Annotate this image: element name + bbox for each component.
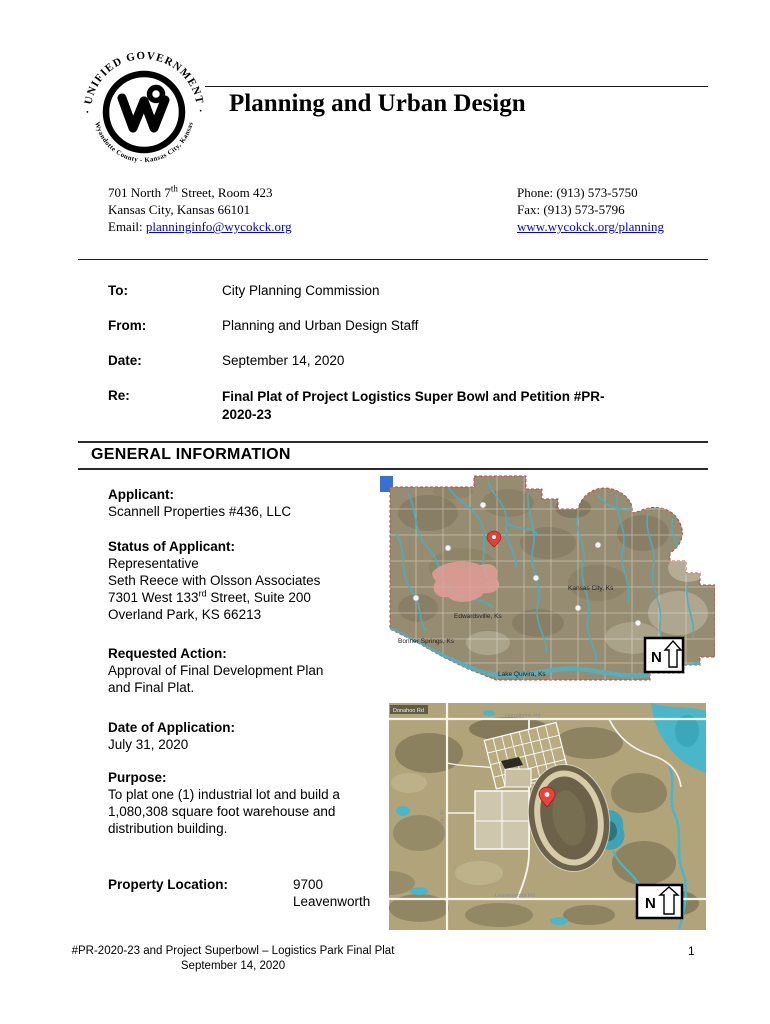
county-terrain: Edwardsville, Ks Bonner Springs, Ks Kans… xyxy=(388,473,715,683)
contact-block: Phone: (913) 573-5750 Fax: (913) 573-579… xyxy=(517,184,664,236)
field-requested-action-label: Requested Action: xyxy=(108,645,323,662)
address-line-2: Kansas City, Kansas 66101 xyxy=(108,201,292,218)
label-lake-quivira: Lake Quivira, Ks xyxy=(498,671,546,678)
north-arrow: N xyxy=(645,638,683,672)
field-date-of-application-label: Date of Application: xyxy=(108,719,235,736)
field-date-of-application: Date of Application: July 31, 2020 xyxy=(108,719,235,753)
memo-re-label: Re: xyxy=(108,388,130,403)
field-applicant-label: Applicant: xyxy=(108,486,291,503)
label-bottom-road: Leavenworth Rd xyxy=(495,893,535,899)
footer-line-1: #PR-2020-23 and Project Superbowl – Logi… xyxy=(63,944,403,959)
website-line: www.wycokck.org/planning xyxy=(517,218,664,235)
memo-re-value: Final Plat of Project Logistics Super Bo… xyxy=(222,388,642,423)
county-location-map: Edwardsville, Ks Bonner Springs, Ks Kans… xyxy=(388,473,715,683)
address-line-1: 701 North 7th Street, Room 423 xyxy=(108,184,292,201)
header-rule xyxy=(205,86,708,87)
memo-to-label: To: xyxy=(108,283,128,298)
memo-from-label: From: xyxy=(108,318,146,333)
svg-text:N: N xyxy=(651,649,662,666)
field-purpose-label: Purpose: xyxy=(108,769,390,786)
field-applicant: Applicant: Scannell Properties #436, LLC xyxy=(108,486,291,520)
label-left-road: N 99th St xyxy=(440,810,446,833)
page-title: Planning and Urban Design xyxy=(229,90,526,118)
field-purpose: Purpose: To plat one (1) industrial lot … xyxy=(108,769,390,837)
field-status-line4: Overland Park, KS 66213 xyxy=(108,606,320,623)
field-purpose-value: To plat one (1) industrial lot and build… xyxy=(108,786,390,837)
memo-from-value: Planning and Urban Design Staff xyxy=(222,318,642,333)
field-status-label: Status of Applicant: xyxy=(108,538,320,555)
field-applicant-value: Scannell Properties #436, LLC xyxy=(108,503,291,520)
field-property-location-value: 9700 Leavenworth xyxy=(293,876,370,910)
phone-line: Phone: (913) 573-5750 xyxy=(517,184,664,201)
section-heading-general-information: GENERAL INFORMATION xyxy=(78,441,708,470)
field-requested-action: Requested Action: Approval of Final Deve… xyxy=(108,645,323,696)
label-kansas-city: Kansas City, Ks xyxy=(568,585,614,592)
label-top-road: Hurrelbrink Rd xyxy=(505,713,540,719)
field-requested-action-value: Approval of Final Development Plan and F… xyxy=(108,662,323,696)
page-number: 1 xyxy=(688,944,695,958)
north-arrow: N xyxy=(637,885,682,918)
road-label-chip: Donahoo Rd xyxy=(390,705,428,714)
fax-line: Fax: (913) 573-5796 xyxy=(517,201,664,218)
address-line-3: Email: planninginfo@wycokck.org xyxy=(108,218,292,235)
svg-text:N: N xyxy=(645,895,656,912)
field-status-of-applicant: Status of Applicant: Representative Seth… xyxy=(108,538,320,623)
label-edwardsville: Edwardsville, Ks xyxy=(454,613,502,620)
memo-date-value: September 14, 2020 xyxy=(222,353,642,368)
label-top-left-road: Donahoo Rd xyxy=(393,708,424,714)
memo-date-label: Date: xyxy=(108,353,142,368)
field-status-line1: Representative xyxy=(108,555,320,572)
website-link[interactable]: www.wycokck.org/planning xyxy=(517,219,664,234)
field-date-of-application-value: July 31, 2020 xyxy=(108,736,235,753)
unified-government-seal: · UNIFIED GOVERNMENT · Wyandotte County … xyxy=(82,50,206,174)
memo-to-value: City Planning Commission xyxy=(222,283,642,298)
footer-line-2: September 14, 2020 xyxy=(63,959,403,974)
label-bonner-springs: Bonner Springs, Ks xyxy=(398,638,455,645)
footer: #PR-2020-23 and Project Superbowl – Logi… xyxy=(63,944,403,974)
site-aerial-map: Donahoo Rd Hurrelbrink Rd Leavenworth Rd… xyxy=(389,703,706,930)
field-property-location-label: Property Location: xyxy=(108,876,228,893)
field-status-line3: 7301 West 133rd Street, Suite 200 xyxy=(108,589,320,606)
seal-disc-w-icon xyxy=(106,74,182,150)
document-page: · UNIFIED GOVERNMENT · Wyandotte County … xyxy=(0,0,770,1024)
address-block: 701 North 7th Street, Room 423 Kansas Ci… xyxy=(108,184,292,236)
email-link[interactable]: planninginfo@wycokck.org xyxy=(146,219,292,234)
divider-rule xyxy=(78,259,708,260)
field-status-line2: Seth Reece with Olsson Associates xyxy=(108,572,320,589)
